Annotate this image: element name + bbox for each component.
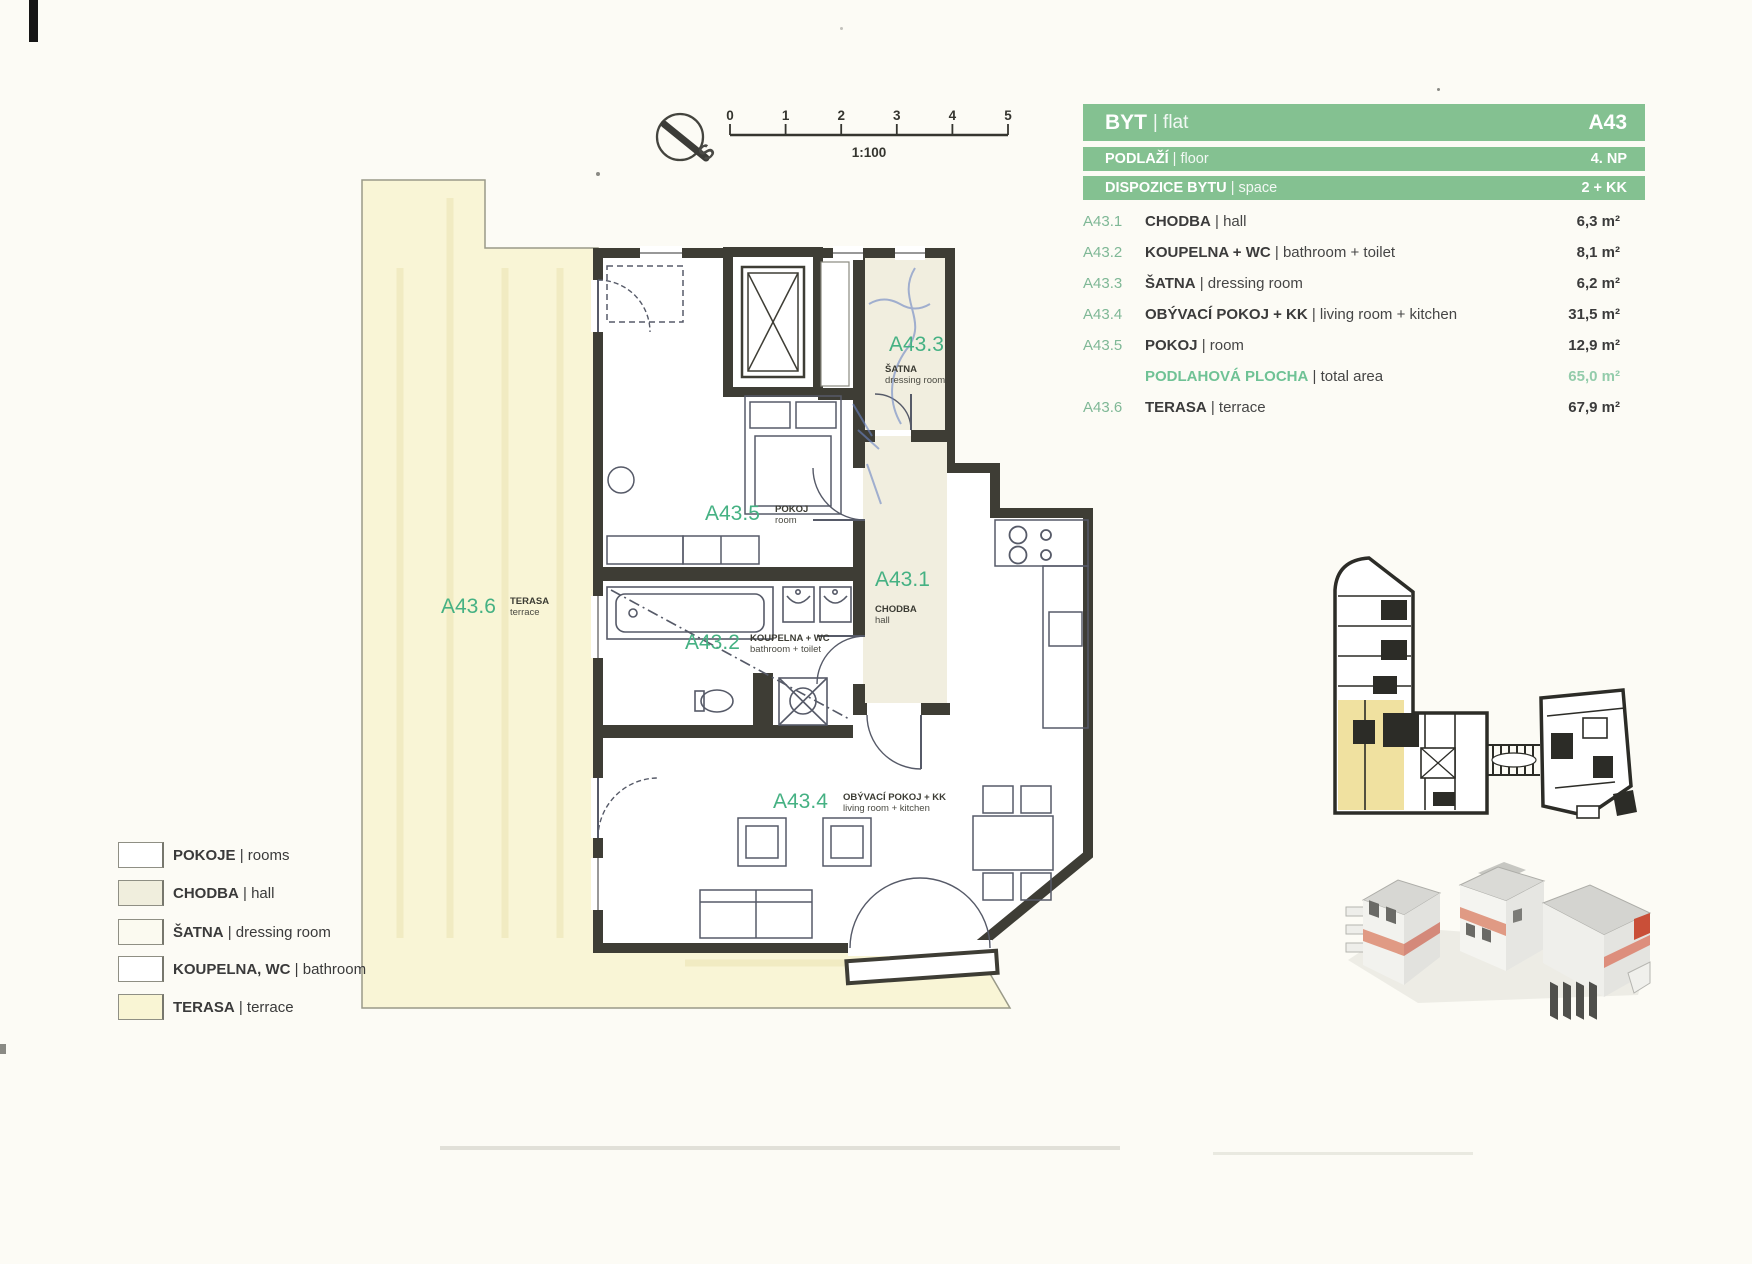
room-name-cs: OBÝVACÍ POKOJ + KK <box>1145 306 1308 323</box>
room-name-en: | living room + kitchen <box>1312 306 1457 323</box>
room-name-en: | terrace <box>1211 399 1266 416</box>
hall-code: A43.1 <box>875 568 930 591</box>
room-name: POKOJ <box>775 504 808 515</box>
flat-header-row: BYT | flat A43 <box>1083 104 1645 141</box>
room-name-en: | hall <box>1215 213 1246 230</box>
total-area-value: 65,0 m² <box>1568 368 1620 385</box>
list-item: A43.5 POKOJ | room 12,9 m² <box>1083 330 1620 361</box>
legend-label-en: | hall <box>243 885 274 902</box>
legend-label-cs: CHODBA <box>173 885 239 902</box>
total-label-en: | total area <box>1313 368 1384 385</box>
bathroom-code: A43.2 <box>685 631 740 654</box>
hall-name: CHODBA <box>875 604 917 615</box>
legend-item-terrace: TERASA | terrace <box>118 994 294 1020</box>
scan-streak <box>1213 1152 1473 1155</box>
legend-label-en: | dressing room <box>228 924 331 941</box>
legend-label-cs: POKOJE <box>173 847 236 864</box>
dressing-sub: dressing room <box>885 375 945 386</box>
scale-bar: 0 1 2 3 4 5 1:100 <box>720 95 1020 167</box>
room-area-list: A43.1 CHODBA | hall 6,3 m² A43.2 KOUPELN… <box>1083 206 1620 423</box>
room-area-value: 67,9 m² <box>1568 399 1620 416</box>
room-area-value: 12,9 m² <box>1568 337 1620 354</box>
scan-dot <box>1437 88 1440 91</box>
total-label-cs: PODLAHOVÁ PLOCHA <box>1145 368 1308 385</box>
room-area-value: 6,2 m² <box>1577 275 1620 292</box>
compass-south-label: S <box>694 139 720 165</box>
room-name-en: | room <box>1202 337 1244 354</box>
legend-swatch-rooms <box>118 842 164 868</box>
scan-mark <box>29 0 38 42</box>
room-area-value: 31,5 m² <box>1568 306 1620 323</box>
list-item: A43.6 TERASA | terrace 67,9 m² <box>1083 392 1620 423</box>
flat-id-value: A43 <box>1588 111 1627 135</box>
floor-value: 4. NP <box>1591 151 1627 167</box>
legend-label-en: | rooms <box>240 847 290 864</box>
legend-label-en: | terrace <box>239 999 294 1016</box>
layout-label-cs: DISPOZICE BYTU <box>1105 180 1227 196</box>
terrace-code: A43.6 <box>441 595 496 618</box>
room-area-value: 6,3 m² <box>1577 213 1620 230</box>
legend-swatch-terrace <box>118 994 164 1020</box>
scale-tick-2: 2 <box>837 108 845 123</box>
building-3d-render <box>1338 845 1653 1020</box>
site-bridge <box>1487 745 1540 775</box>
room-area-value: 8,1 m² <box>1577 244 1620 261</box>
scale-ratio-label: 1:100 <box>852 145 887 160</box>
elevator-shaft <box>728 252 818 392</box>
legend-item-rooms: POKOJE | rooms <box>118 842 289 868</box>
scale-tick-5: 5 <box>1004 108 1012 123</box>
floor-plan: A43.6 TERASA terrace A43.5 POKOJ room A4… <box>355 168 1100 1020</box>
scale-tick-4: 4 <box>949 108 957 123</box>
dressing-name: ŠATNA <box>885 363 917 375</box>
room-name-cs: POKOJ <box>1145 337 1198 354</box>
scale-tick-1: 1 <box>782 108 790 123</box>
legend-item-dressing: ŠATNA | dressing room <box>118 919 331 945</box>
room-code: A43.5 <box>705 502 760 525</box>
scan-mark <box>0 1044 6 1054</box>
floor-header-row: PODLAŽÍ | floor 4. NP <box>1083 147 1645 171</box>
bathroom-sub: bathroom + toilet <box>750 644 821 655</box>
list-item: A43.1 CHODBA | hall 6,3 m² <box>1083 206 1620 237</box>
duct-niche <box>821 262 849 386</box>
living-sub: living room + kitchen <box>843 803 930 814</box>
site-plan <box>1325 548 1645 823</box>
legend-item-bathroom: KOUPELNA, WC | bathroom <box>118 956 366 982</box>
scan-streak <box>440 1146 1120 1150</box>
terrace-name: TERASA <box>510 596 549 607</box>
layout-header-row: DISPOZICE BYTU | space 2 + KK <box>1083 176 1645 200</box>
legend-label-en: | bathroom <box>295 961 366 978</box>
terrace-sub: terrace <box>510 607 540 618</box>
hall-sub: hall <box>875 615 890 626</box>
flat-label-cs: BYT <box>1105 111 1147 135</box>
room-name-en: | bathroom + toilet <box>1275 244 1395 261</box>
legend-item-hall: CHODBA | hall <box>118 880 274 906</box>
bathroom-name: KOUPELNA + WC <box>750 633 830 644</box>
legend-swatch-hall <box>118 880 164 906</box>
floor-label-en: | floor <box>1173 151 1209 167</box>
total-area-row: PODLAHOVÁ PLOCHA | total area 65,0 m² <box>1083 361 1620 392</box>
legend-label-cs: ŠATNA <box>173 924 224 941</box>
room-name-cs: ŠATNA <box>1145 275 1196 292</box>
layout-label-en: | space <box>1231 180 1278 196</box>
dressing-code: A43.3 <box>889 333 944 356</box>
render-block-middle <box>1460 862 1544 971</box>
room-name-en: | dressing room <box>1200 275 1303 292</box>
floor-label-cs: PODLAŽÍ <box>1105 151 1169 167</box>
room-name-cs: TERASA <box>1145 399 1207 416</box>
scan-dot <box>840 27 843 30</box>
legend-swatch-dressing <box>118 919 164 945</box>
layout-value: 2 + KK <box>1581 180 1627 196</box>
scan-dot <box>596 172 600 176</box>
room-name-cs: KOUPELNA + WC <box>1145 244 1271 261</box>
legend-label-cs: KOUPELNA, WC <box>173 961 291 978</box>
room-name-cs: CHODBA <box>1145 213 1211 230</box>
legend-swatch-bathroom <box>118 956 164 982</box>
legend-label-cs: TERASA <box>173 999 235 1016</box>
room-sub: room <box>775 515 797 526</box>
scale-tick-3: 3 <box>893 108 901 123</box>
scale-ticks <box>730 124 1008 135</box>
list-item: A43.3 ŠATNA | dressing room 6,2 m² <box>1083 268 1620 299</box>
scale-tick-0: 0 <box>726 108 734 123</box>
living-code: A43.4 <box>773 790 828 813</box>
flat-label-en: | flat <box>1153 112 1189 134</box>
living-name: OBÝVACÍ POKOJ + KK <box>843 791 946 803</box>
list-item: A43.2 KOUPELNA + WC | bathroom + toilet … <box>1083 237 1620 268</box>
render-block-right <box>1543 885 1650 1020</box>
list-item: A43.4 OBÝVACÍ POKOJ + KK | living room +… <box>1083 299 1620 330</box>
